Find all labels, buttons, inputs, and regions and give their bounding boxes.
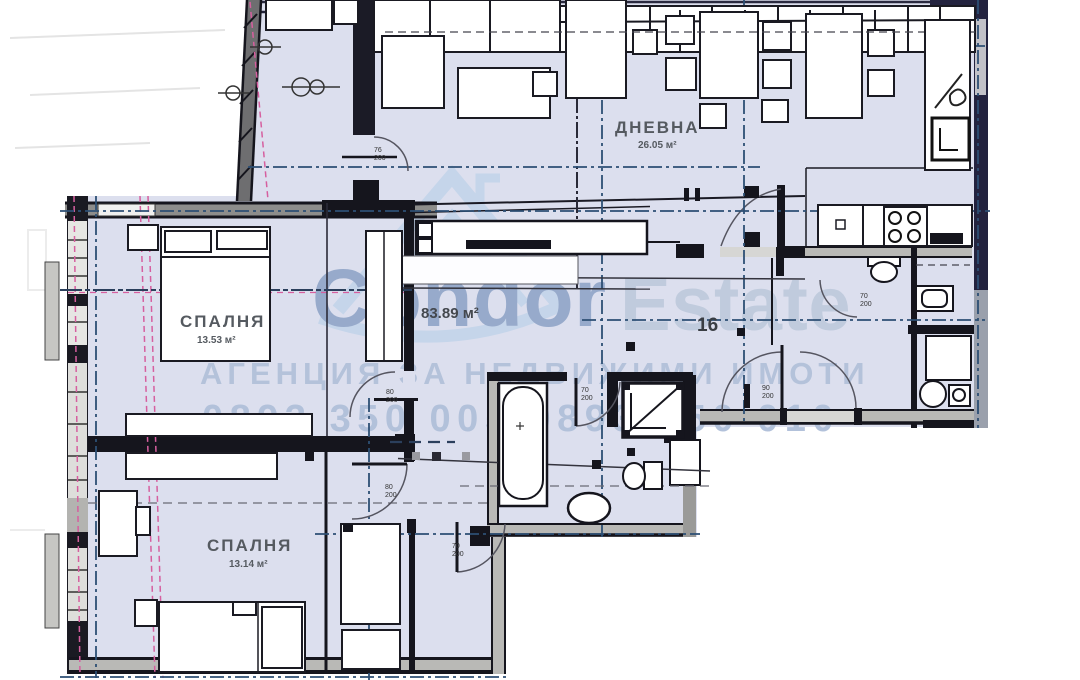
svg-text:СПАЛНЯ: СПАЛНЯ	[207, 536, 292, 555]
svg-text:Estate: Estate	[620, 262, 851, 347]
svg-text:ДНЕВНА: ДНЕВНА	[615, 118, 700, 137]
svg-text:16: 16	[697, 315, 718, 336]
svg-text:70: 70	[860, 293, 868, 300]
svg-text:90: 90	[762, 385, 770, 392]
svg-text:83.89 м²: 83.89 м²	[421, 305, 479, 322]
svg-text:80: 80	[385, 484, 393, 491]
svg-text:13.53 м²: 13.53 м²	[197, 335, 236, 346]
svg-text:200: 200	[452, 551, 464, 558]
svg-text:26.05 м²: 26.05 м²	[638, 140, 677, 151]
svg-text:13.14 м²: 13.14 м²	[229, 559, 268, 570]
svg-text:76: 76	[374, 147, 382, 154]
svg-text:200: 200	[386, 397, 398, 404]
svg-text:70: 70	[452, 543, 460, 550]
svg-text:СПАЛНЯ: СПАЛНЯ	[180, 312, 265, 331]
svg-text:200: 200	[581, 395, 593, 402]
svg-text:80: 80	[386, 389, 394, 396]
svg-text:200: 200	[374, 155, 386, 162]
svg-text:200: 200	[762, 393, 774, 400]
svg-text:200: 200	[385, 492, 397, 499]
svg-text:70: 70	[581, 387, 589, 394]
svg-text:200: 200	[860, 301, 872, 308]
